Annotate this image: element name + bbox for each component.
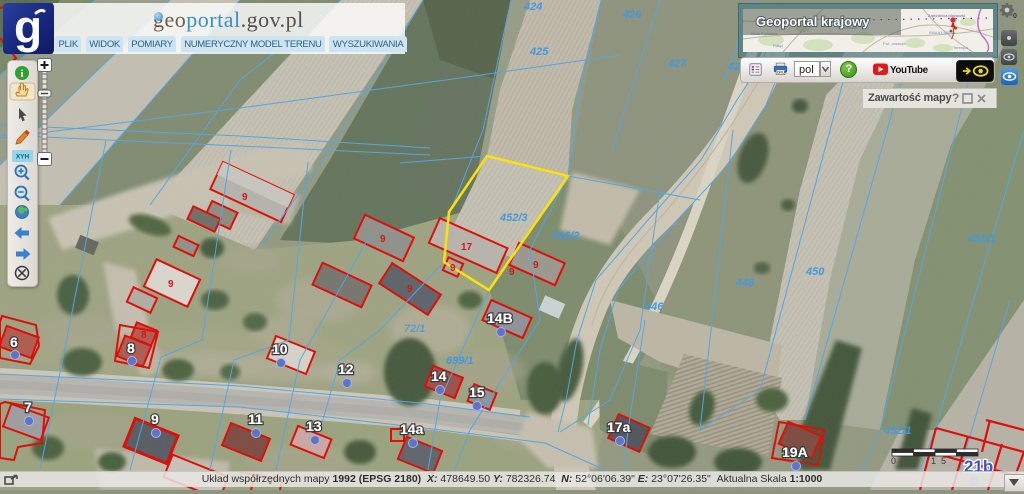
svg-text:Terespol: Terespol <box>953 45 968 50</box>
svg-text:1: 1 <box>931 456 936 464</box>
svg-text:6: 6 <box>10 334 18 350</box>
svg-text:Geoportal krajowy: Geoportal krajowy <box>756 14 870 29</box>
svg-text:YouTube: YouTube <box>890 65 929 76</box>
svg-text:5: 5 <box>941 456 946 464</box>
svg-text:15: 15 <box>469 384 485 400</box>
svg-text:8: 8 <box>127 340 135 356</box>
svg-text:0: 0 <box>891 456 896 464</box>
svg-text:Rałęć: Rałęć <box>773 43 783 48</box>
svg-text:i: i <box>20 68 23 80</box>
svg-text:Zajezdnica płazaczki: Zajezdnica płazaczki <box>928 13 965 18</box>
svg-text:10: 10 <box>272 341 288 357</box>
svg-text:Poł...owacze: Poł...owacze <box>883 41 906 46</box>
svg-text:0: 0 <box>1013 13 1017 20</box>
svg-text:14a: 14a <box>400 421 424 437</box>
svg-text:17a: 17a <box>607 419 631 435</box>
svg-text:13: 13 <box>306 418 322 434</box>
svg-text:9: 9 <box>151 411 159 427</box>
svg-text:11: 11 <box>248 411 263 427</box>
svg-text:14: 14 <box>431 368 447 384</box>
svg-text:14B: 14B <box>487 310 513 326</box>
svg-text:XYH: XYH <box>16 154 30 161</box>
svg-text:7: 7 <box>24 399 32 415</box>
svg-text:19A: 19A <box>782 444 808 460</box>
svg-text:12: 12 <box>338 361 354 377</box>
svg-text:DRUK: DRUK <box>777 71 788 75</box>
